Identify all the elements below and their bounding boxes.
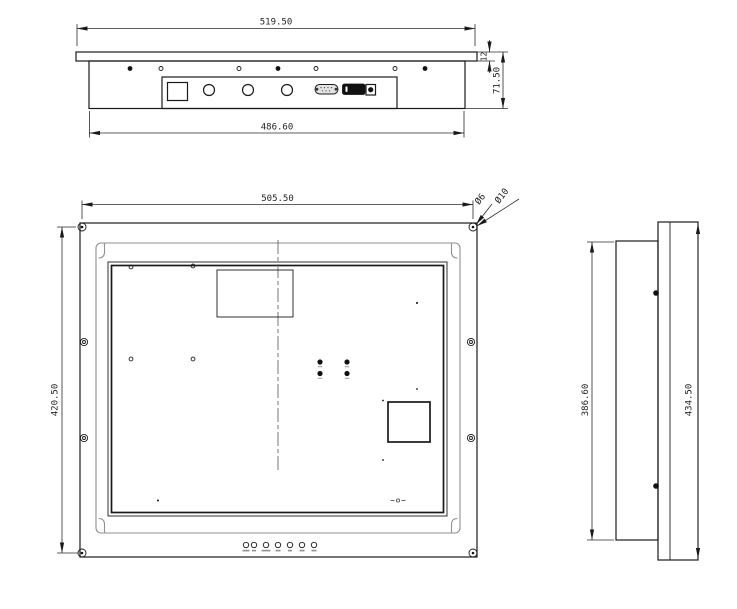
mounting-hole-tl <box>78 223 86 231</box>
bnc-connector <box>243 85 254 96</box>
osd-button <box>299 542 304 547</box>
osd-button <box>287 542 292 547</box>
dim-side-body-height: 386.60 <box>581 242 614 540</box>
datum-target-icon <box>391 499 406 502</box>
vesa-stud-dots <box>317 359 349 378</box>
hole-callouts: Ø6 Ø10 <box>473 186 519 226</box>
mounting-hole-bl <box>78 549 86 557</box>
dim-top-overall-width: 519.50 <box>77 18 475 47</box>
dim-label-mount-height: 420.50 <box>51 384 61 417</box>
top-view: 519.50 486.60 12 71.50 <box>76 18 508 138</box>
power-inlet-connector <box>168 83 188 101</box>
mounting-flange <box>80 223 477 557</box>
mounting-hole-side <box>80 338 474 441</box>
hole-icon <box>159 67 163 71</box>
dim-rear-mount-height: 420.50 <box>51 227 79 553</box>
cover-screw-holes <box>129 264 195 361</box>
back-cover-inner <box>112 266 444 513</box>
dvi-connector <box>343 84 366 95</box>
dim-rear-mount-width: 505.50 <box>82 194 473 219</box>
side-access-window <box>388 402 430 442</box>
hole-icon <box>237 67 241 71</box>
side-screw-icon <box>653 483 659 489</box>
hole-icon <box>393 67 397 71</box>
osd-button <box>275 542 280 547</box>
dim-label-body-height: 386.60 <box>581 384 591 417</box>
side-view: 386.60 434.50 <box>581 222 698 560</box>
dim-label-front-thickness: 12 <box>480 52 489 62</box>
osd-button <box>311 542 316 547</box>
osd-button <box>263 542 268 547</box>
dim-label-total-depth: 71.50 <box>493 67 503 94</box>
side-rear-housing <box>616 241 658 540</box>
screw-hole-row <box>128 66 428 71</box>
back-cover-outer <box>108 262 447 516</box>
hole-icon <box>314 67 318 71</box>
dim-label-hole-small: Ø6 <box>473 192 488 207</box>
screw-icon <box>276 66 281 71</box>
bnc-connector <box>282 85 293 96</box>
dc-jack-connector <box>366 85 376 96</box>
io-panel <box>162 77 397 109</box>
drawing-sheet: 519.50 486.60 12 71.50 <box>0 0 737 609</box>
top-access-window <box>217 270 293 317</box>
screw-icon <box>423 66 428 71</box>
osd-button-row <box>243 542 317 551</box>
vga-connector <box>315 85 338 95</box>
osd-button <box>243 542 248 547</box>
dim-top-body-width: 486.60 <box>90 111 465 138</box>
dim-label-panel-height: 434.50 <box>685 384 695 417</box>
bnc-connector <box>204 85 215 96</box>
rear-view: 505.50 420.50 Ø6 Ø10 <box>51 186 520 557</box>
engineering-drawing: 519.50 486.60 12 71.50 <box>0 0 737 609</box>
dim-label-hole-large: Ø10 <box>493 186 512 206</box>
dim-label-body-width: 486.60 <box>261 123 294 133</box>
front-bezel-plate <box>76 52 477 61</box>
dim-label-mount-width: 505.50 <box>261 194 294 204</box>
dim-side-panel-height: 434.50 <box>685 224 699 559</box>
screw-icon <box>128 66 133 71</box>
osd-button <box>251 542 256 547</box>
reference-marks <box>157 302 418 502</box>
mounting-hole-br <box>469 549 477 557</box>
side-screw-icon <box>653 290 659 296</box>
dim-label-overall-width: 519.50 <box>260 18 293 28</box>
